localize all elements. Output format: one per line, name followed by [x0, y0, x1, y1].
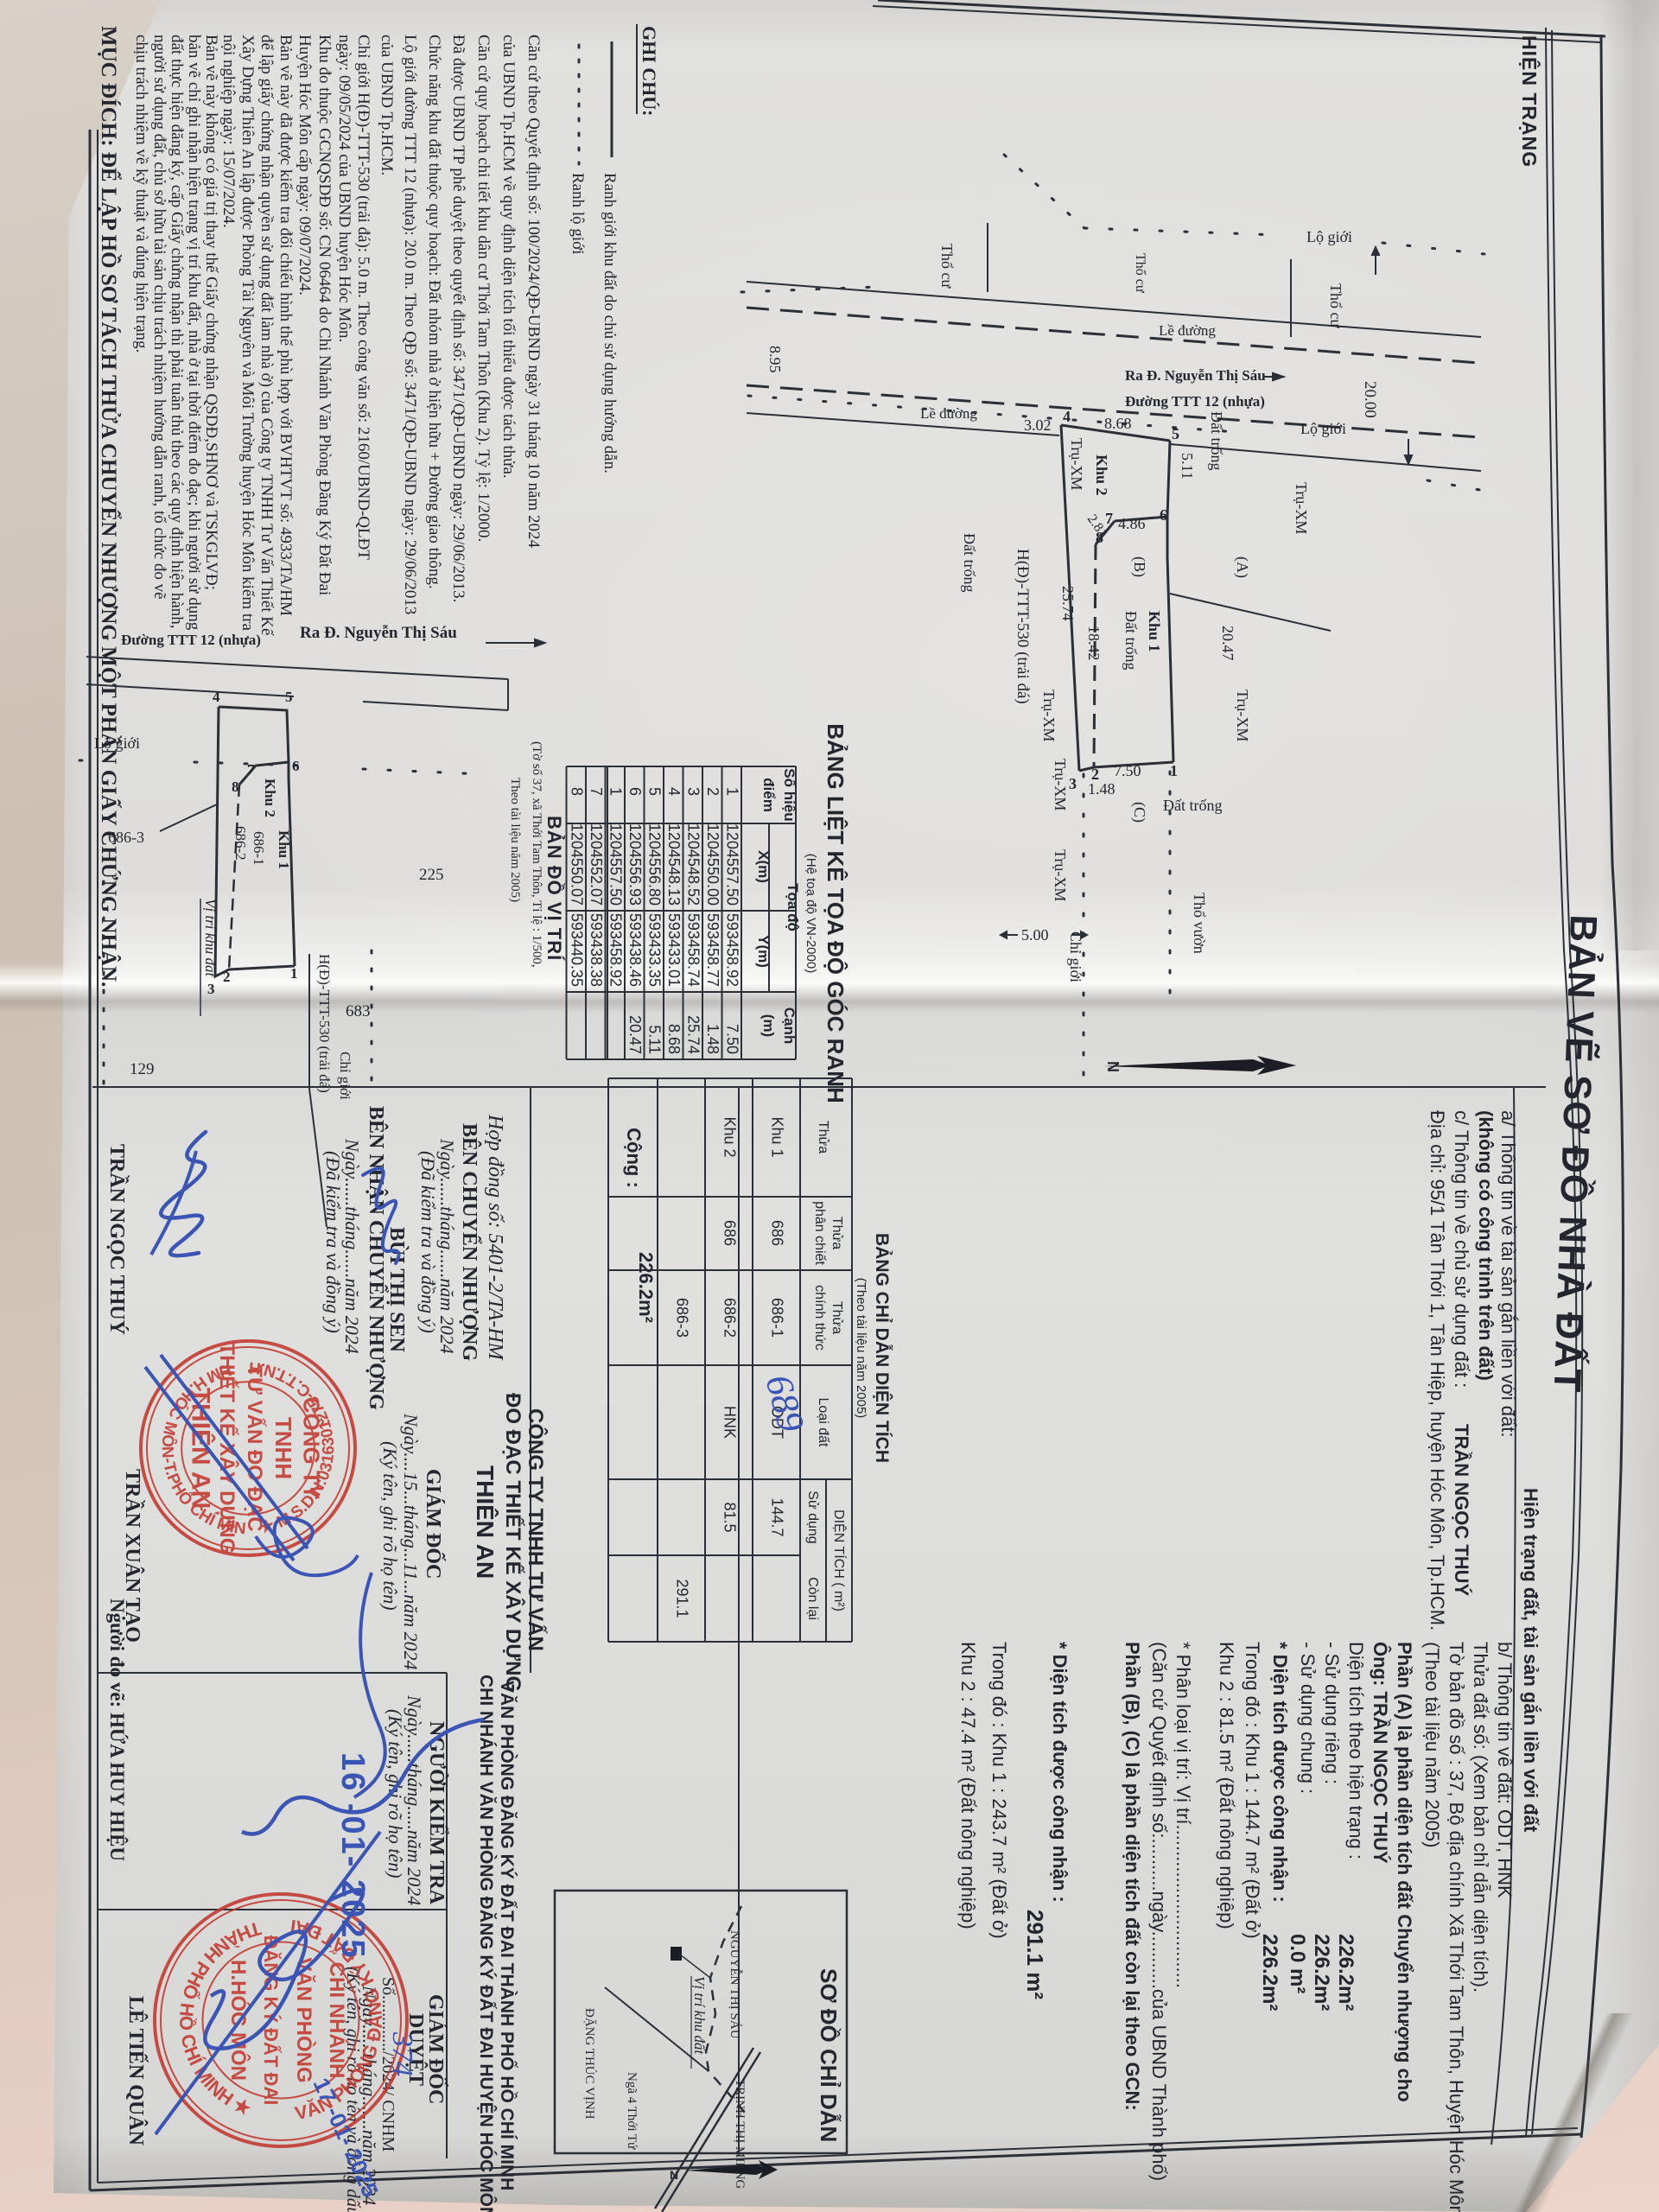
- svg-text:1204550.07: 1204550.07: [569, 823, 586, 906]
- svg-text:5.11: 5.11: [1179, 453, 1196, 480]
- svg-text:8.68: 8.68: [1104, 415, 1132, 432]
- svg-text:Chỉ giới: Chỉ giới: [337, 1052, 353, 1100]
- svg-text:593440.35: 593440.35: [569, 913, 586, 987]
- svg-text:Ngày....15...tháng...11...năm: Ngày....15...tháng...11...năm 2024: [400, 1413, 422, 1670]
- svg-text:bản vẽ chỉ ghi nhận hiện trạng: bản vẽ chỉ ghi nhận hiện trạng vị trí kh…: [185, 35, 203, 631]
- svg-text:4: 4: [1063, 408, 1071, 425]
- svg-text:BÊN CHUYỂN NHƯỢNG: BÊN CHUYỂN NHƯỢNG: [458, 1123, 481, 1361]
- svg-text:c/ Thông tin về chủ sử dụng đấ: c/ Thông tin về chủ sử dụng đất :: [1451, 1110, 1472, 1388]
- svg-text:- Sử dụng chung :: - Sử dụng chung :: [1297, 1642, 1319, 1794]
- svg-text:291.1: 291.1: [674, 1579, 691, 1618]
- svg-text:Bản vẽ này không có giá trị th: Bản vẽ này không có giá trị thay thế Giấ…: [202, 35, 220, 590]
- svg-text:(B): (B): [1130, 556, 1148, 577]
- svg-text:N: N: [1104, 1061, 1122, 1072]
- svg-text:H(Đ)-TTT-530 (trải đá): H(Đ)-TTT-530 (trải đá): [1014, 549, 1032, 704]
- svg-text:0.0 m²: 0.0 m²: [1286, 1934, 1309, 1993]
- svg-text:Khu 2: Khu 2: [1093, 454, 1110, 496]
- svg-text:Thửa: Thửa: [829, 1301, 844, 1334]
- svg-text:chính thức: chính thức: [812, 1285, 827, 1351]
- svg-text:Trụ-XM: Trụ-XM: [1052, 759, 1069, 810]
- svg-text:1204548.13: 1204548.13: [665, 823, 683, 906]
- svg-text:Đường TTT 12 (nhựa): Đường TTT 12 (nhựa): [121, 632, 261, 648]
- svg-text:1204548.52: 1204548.52: [685, 823, 702, 906]
- svg-text:Trong đó : Khu 1 : 243.7 m²: Trong đó : Khu 1 : 243.7 m² (Đất ở): [988, 1642, 1010, 1939]
- svg-text:H(Đ)-TTT-530 (trải đá): H(Đ)-TTT-530 (trải đá): [316, 954, 333, 1093]
- svg-text:Khu 1: Khu 1: [769, 1116, 786, 1157]
- svg-text:Trụ-XM: Trụ-XM: [1052, 849, 1069, 901]
- svg-text:1204550.00: 1204550.00: [704, 823, 721, 906]
- svg-text:1: 1: [1170, 762, 1178, 779]
- svg-text:người sử dụng đất, chủ sở hữu: người sử dụng đất, chủ sở hữu tài sản ch…: [150, 35, 168, 600]
- svg-text:của UBND Tp.HCM.: của UBND Tp.HCM.: [378, 35, 396, 175]
- svg-text:4.86: 4.86: [1118, 515, 1146, 532]
- svg-text:226.2m²: 226.2m²: [1310, 1934, 1333, 2011]
- svg-text:Hiện trạng đất, tài sản gắn li: Hiện trạng đất, tài sản gắn liền với đất: [1520, 1488, 1541, 1833]
- svg-text:CÔNG TY: CÔNG TY: [298, 1397, 324, 1499]
- svg-text:8.68: 8.68: [665, 1024, 683, 1054]
- svg-text:25.74: 25.74: [1059, 586, 1077, 621]
- svg-text:18.42: 18.42: [1085, 626, 1103, 661]
- svg-text:HIỆN TRẠNG: HIỆN TRẠNG: [1518, 35, 1541, 168]
- svg-text:20.47: 20.47: [626, 1015, 644, 1054]
- svg-text:* Diện tích được công nhận :: * Diện tích được công nhận :: [1049, 1642, 1071, 1903]
- svg-text:7: 7: [247, 761, 255, 778]
- svg-text:2: 2: [704, 787, 721, 796]
- svg-text:Khu 1: Khu 1: [1146, 611, 1163, 652]
- svg-text:Khu 2 : 81.5 m² (Đất nông ng: Khu 2 : 81.5 m² (Đất nông nghiệp): [1216, 1642, 1237, 1929]
- svg-text:2: 2: [223, 969, 231, 985]
- svg-text:1.48: 1.48: [1088, 780, 1116, 798]
- svg-text:HNK: HNK: [721, 1406, 739, 1439]
- svg-text:Lộ giới đường TTT 12 (nhựa): 2: Lộ giới đường TTT 12 (nhựa): 20.0 m. The…: [401, 35, 419, 614]
- svg-text:Căn cứ theo Quyết định số: 100: Căn cứ theo Quyết định số: 100/2024/QĐ-U…: [524, 35, 543, 548]
- svg-text:của UBND Tp.HCM về quy định di: của UBND Tp.HCM về quy định diện tích tố…: [499, 35, 518, 479]
- svg-text:Sử dụng: Sử dụng: [805, 1491, 820, 1543]
- svg-text:Trụ-XM: Trụ-XM: [1234, 690, 1251, 741]
- svg-text:Trụ-XM: Trụ-XM: [1040, 690, 1058, 741]
- svg-text:b/ Thông tin về đất: ODT, HNK: b/ Thông tin về đất: ODT, HNK: [1494, 1642, 1516, 1898]
- svg-text:TRẦN NGỌC THUÝ: TRẦN NGỌC THUÝ: [1451, 1424, 1472, 1597]
- svg-text:593438.46: 593438.46: [626, 913, 644, 987]
- svg-text:GIÁM ĐỐC: GIÁM ĐỐC: [424, 1994, 448, 2104]
- svg-text:Hợp đồng số: 5401-2/TA-HM: Hợp đồng số: 5401-2/TA-HM: [484, 1114, 506, 1362]
- svg-text:4: 4: [665, 787, 683, 796]
- svg-text:Thổ cư: Thổ cư: [1133, 253, 1147, 294]
- svg-text:BẢN ĐỒ VỊ TRÍ: BẢN ĐỒ VỊ TRÍ: [543, 816, 565, 961]
- svg-text:GIÁM ĐỐC: GIÁM ĐỐC: [422, 1469, 445, 1579]
- svg-text:1.48: 1.48: [704, 1024, 721, 1054]
- svg-text:Khu 1: Khu 1: [276, 830, 292, 869]
- svg-text:ĐẶNG THÚC VỊNH: ĐẶNG THÚC VỊNH: [582, 2008, 597, 2120]
- svg-text:81.5: 81.5: [721, 1502, 739, 1532]
- svg-text:THIÊN AN: THIÊN AN: [472, 1465, 499, 1579]
- svg-text:(Ký tên, ghi rõ họ tên): (Ký tên, ghi rõ họ tên): [385, 1709, 406, 1878]
- svg-text:TƯ VẤN ĐO ĐẠC: TƯ VẤN ĐO ĐẠC: [243, 1364, 267, 1531]
- svg-text:6: 6: [1160, 506, 1167, 524]
- svg-text:593438.38: 593438.38: [588, 913, 605, 987]
- svg-text:BÙI THỊ SEN: BÙI THỊ SEN: [385, 1227, 408, 1353]
- svg-text:(Ký tên, ghi rõ họ tên): (Ký tên, ghi rõ họ tên): [379, 1441, 401, 1611]
- svg-text:* Diện tích được công nhận :: * Diện tích được công nhận :: [1269, 1642, 1291, 1903]
- svg-text:5.00: 5.00: [1021, 926, 1049, 944]
- svg-text:Ranh lộ giới: Ranh lộ giới: [569, 173, 587, 255]
- svg-text:1: 1: [724, 787, 741, 796]
- svg-text:* Phân loại vị trí: Vị trí....: * Phân loại vị trí: Vị trí..............…: [1173, 1642, 1194, 1988]
- svg-text:Khu 2: Khu 2: [721, 1116, 739, 1157]
- svg-text:Ngã 4 Thới Tứ: Ngã 4 Thới Tứ: [625, 2072, 639, 2150]
- svg-text:Lộ giới: Lộ giới: [1300, 420, 1346, 437]
- svg-text:Phần (B), (C) là phần diện tíc: Phần (B), (C) là phần diện tích đất còn …: [1122, 1642, 1143, 2111]
- svg-text:(không có công trình trên đất): (không có công trình trên đất): [1475, 1110, 1497, 1381]
- svg-text:Ranh giới khu đất do chủ sử dụ: Ranh giới khu đất do chủ sử dụng hướng d…: [601, 173, 619, 474]
- svg-text:THIẾT KẾ XÂY DỰNG: THIẾT KẾ XÂY DỰNG: [215, 1343, 239, 1554]
- svg-text:1: 1: [290, 965, 298, 982]
- svg-text:Người đo vẽ: HỨA HUY HIỆU: Người đo vẽ: HỨA HUY HIỆU: [106, 1599, 128, 1861]
- svg-text:7.50: 7.50: [1114, 762, 1141, 779]
- svg-text:Trong đó : Khu 1 : 144.7 m²: Trong đó : Khu 1 : 144.7 m² (Đất ở): [1242, 1642, 1263, 1939]
- svg-text:593458.92: 593458.92: [607, 913, 625, 987]
- svg-text:Thổ cư: Thổ cư: [938, 244, 956, 289]
- svg-text:phân chiết: phân chiết: [812, 1201, 827, 1265]
- svg-text:225: 225: [419, 866, 444, 884]
- svg-text:Vị trí khu đất: Vị trí khu đất: [691, 1976, 708, 2055]
- svg-text:DIỆN TÍCH ( m²): DIỆN TÍCH ( m²): [831, 1510, 848, 1611]
- svg-text:Bản vẽ này đã được kiểm tra đố: Bản vẽ này đã được kiểm tra đối chiếu hì…: [276, 35, 295, 616]
- svg-text:GHI CHÚ:: GHI CHÚ:: [639, 26, 660, 117]
- svg-text:Căn cứ quy hoạch chi tiết khu: Căn cứ quy hoạch chi tiết khu dân cư Thớ…: [474, 35, 493, 542]
- svg-text:374: 374: [386, 2031, 418, 2076]
- svg-text:(C): (C): [1130, 802, 1148, 823]
- svg-text:4: 4: [213, 689, 220, 705]
- svg-text:129: 129: [130, 1060, 155, 1078]
- svg-text:(Theo tài liệu năm 2005): (Theo tài liệu năm 2005): [1421, 1642, 1443, 1847]
- svg-text:Cạnh: Cạnh: [781, 1007, 798, 1045]
- svg-text:BẢN VẼ SƠ ĐỒ NHÀ ĐẤT: BẢN VẼ SƠ ĐỒ NHÀ ĐẤT: [1546, 914, 1605, 1394]
- svg-text:686-1: 686-1: [769, 1298, 786, 1338]
- svg-text:Diện tích theo hiện trạng :: Diện tích theo hiện trạng :: [1345, 1642, 1367, 1859]
- svg-text:689: 689: [757, 1370, 812, 1436]
- svg-text:ngày: 09/05/2024 của UBND huyệ: ngày: 09/05/2024 của UBND huyện Hóc Môn.: [335, 35, 353, 342]
- svg-text:Tọa độ: Tọa độ: [785, 883, 801, 931]
- svg-text:BÊN NHẬN CHUYỂN NHƯỢNG: BÊN NHẬN CHUYỂN NHƯỢNG: [365, 1106, 388, 1410]
- svg-text:8: 8: [1096, 529, 1103, 546]
- svg-text:(Hệ toạ độ VN-2000): (Hệ toạ độ VN-2000): [804, 854, 818, 973]
- svg-text:ĐO ĐẠC THIẾT KẾ XÂY DỰNG: ĐO ĐẠC THIẾT KẾ XÂY DỰNG: [501, 1393, 525, 1692]
- svg-text:3: 3: [1069, 775, 1077, 792]
- svg-text:291.1 m²: 291.1 m²: [1022, 1910, 1048, 1999]
- svg-text:683: 683: [346, 1002, 371, 1020]
- svg-text:Xây Dựng Thiên An lập được Phò: Xây Dựng Thiên An lập được Phòng Tài Ngu…: [238, 35, 257, 631]
- svg-text:Thửa: Thửa: [816, 1121, 830, 1154]
- svg-text:1: 1: [607, 787, 625, 796]
- svg-text:TNHH: TNHH: [270, 1417, 296, 1479]
- svg-text:NGUYỄN THỊ SÁU: NGUYỄN THỊ SÁU: [728, 1930, 743, 2039]
- svg-text:Y(m): Y(m): [755, 935, 772, 968]
- svg-text:Thổ cư: Thổ cư: [1327, 283, 1344, 328]
- svg-text:Chỉ giới: Chỉ giới: [1067, 931, 1084, 982]
- svg-text:Trụ-XM: Trụ-XM: [1068, 438, 1085, 490]
- svg-text:Đất trống: Đất trống: [1163, 797, 1222, 814]
- svg-text:7: 7: [1105, 510, 1113, 527]
- svg-text:(Căn cứ Quyết định số:........: (Căn cứ Quyết định số:..........ngày....…: [1148, 1642, 1170, 2181]
- svg-text:(Theo tài liệu năm 2005): (Theo tài liệu năm 2005): [854, 1278, 868, 1419]
- svg-text:226.2m²: 226.2m²: [1258, 1934, 1281, 2011]
- svg-text:Lề đường: Lề đường: [920, 405, 977, 422]
- svg-text:điểm: điểm: [760, 778, 777, 812]
- svg-text:X(m): X(m): [755, 850, 772, 883]
- svg-text:686-1: 686-1: [251, 831, 267, 866]
- svg-text:Ra Đ. Nguyễn Thị Sáu: Ra Đ. Nguyễn Thị Sáu: [300, 624, 457, 642]
- svg-text:Đất trống: Đất trống: [1122, 611, 1140, 670]
- svg-text:BẢNG CHỈ DẪN DIỆN TÍCH: BẢNG CHỈ DẪN DIỆN TÍCH: [872, 1233, 893, 1463]
- svg-text:đất thực hiện đăng ký, cấp Giấ: đất thực hiện đăng ký, cấp Giấy chứng nh…: [168, 35, 186, 629]
- svg-text:(Đã kiểm tra và đồng ý): (Đã kiểm tra và đồng ý): [417, 1151, 439, 1333]
- svg-text:7: 7: [588, 787, 605, 796]
- svg-text:N: N: [670, 2168, 678, 2182]
- svg-text:BẢNG LIỆT KÊ TỌA ĐỘ GÓC RANH: BẢNG LIỆT KÊ TỌA ĐỘ GÓC RANH: [823, 723, 849, 1103]
- svg-text:686-2: 686-2: [232, 826, 249, 861]
- svg-text:1204557.50: 1204557.50: [607, 823, 625, 906]
- svg-text:20.47: 20.47: [1219, 626, 1236, 661]
- svg-text:Lề đường: Lề đường: [1159, 322, 1216, 339]
- svg-text:25.74: 25.74: [685, 1015, 702, 1054]
- svg-text:CÔNG TY TNHH TƯ VẤN: CÔNG TY TNHH TƯ VẤN: [524, 1408, 548, 1651]
- svg-text:Ông: TRẦN NGỌC THUÝ: Ông: TRẦN NGỌC THUÝ: [1370, 1642, 1391, 1864]
- svg-text:Cộng :: Cộng :: [623, 1128, 645, 1188]
- svg-text:686: 686: [721, 1220, 739, 1246]
- svg-text:Đường TTT 12 (nhựa): Đường TTT 12 (nhựa): [1125, 393, 1265, 410]
- svg-text:Lộ giới: Lộ giới: [94, 734, 140, 752]
- svg-text:Khu 2: Khu 2: [262, 779, 278, 817]
- svg-text:8: 8: [569, 787, 586, 796]
- svg-text:593433.35: 593433.35: [646, 913, 664, 987]
- svg-text:(Đã kiểm tra và đồng ý): (Đã kiểm tra và đồng ý): [322, 1151, 344, 1333]
- svg-text:Đã được UBND TP phê duyệt theo: Đã được UBND TP phê duyệt theo quyết địn…: [449, 35, 467, 602]
- svg-text:Đất trống: Đất trống: [961, 533, 978, 592]
- svg-text:Địa chỉ: 95/1 Tân Thới 1, Tân: Địa chỉ: 95/1 Tân Thới 1, Tân Hiệp, huyệ…: [1427, 1110, 1448, 1630]
- svg-text:1204556.80: 1204556.80: [646, 823, 664, 906]
- svg-text:226.2m²: 226.2m²: [1334, 1934, 1357, 2011]
- svg-text:6: 6: [292, 758, 300, 774]
- svg-text:Ra Đ. Nguyễn Thị Sáu: Ra Đ. Nguyễn Thị Sáu: [1125, 367, 1266, 384]
- svg-text:5: 5: [285, 689, 293, 705]
- svg-text:Chỉ giới H(Đ)-TTT-530 (trải đá: Chỉ giới H(Đ)-TTT-530 (trải đá): 5.0 m. …: [354, 35, 372, 560]
- svg-text:VĂN PHÒNG ĐĂNG KÝ ĐẤT ĐAI THÀN: VĂN PHÒNG ĐĂNG KÝ ĐẤT ĐAI THÀNH PHỐ HỒ C…: [497, 1681, 518, 2190]
- svg-text:Số hiệu: Số hiệu: [781, 768, 798, 821]
- svg-text:Theo tài liệu năm 2005): Theo tài liệu năm 2005): [508, 778, 522, 902]
- svg-text:5.11: 5.11: [646, 1025, 664, 1054]
- svg-text:3.02: 3.02: [1024, 416, 1052, 434]
- svg-text:Lộ giới: Lộ giới: [1306, 228, 1352, 245]
- svg-text:(Tờ số 37, xã Thới Tam Thôn, T: (Tờ số 37, xã Thới Tam Thôn, Tỉ lệ : 1/5…: [530, 741, 543, 968]
- svg-text:Thửa: Thửa: [829, 1217, 844, 1249]
- svg-text:593458.74: 593458.74: [685, 913, 702, 987]
- svg-text:- Sử dụng riêng :: - Sử dụng riêng :: [1321, 1642, 1343, 1784]
- svg-text:Khu đo thuộc GCNQSDĐ số: CN 06: Khu đo thuộc GCNQSDĐ số: CN 06464 do Chi…: [315, 35, 334, 595]
- svg-text:1204552.07: 1204552.07: [588, 823, 605, 906]
- svg-text:8: 8: [232, 779, 239, 795]
- svg-text:LÊ TIẾN QUÂN: LÊ TIẾN QUÂN: [124, 1996, 148, 2146]
- svg-text:Còn lại: Còn lại: [805, 1577, 820, 1620]
- svg-text:686-2: 686-2: [721, 1298, 739, 1338]
- svg-text:3: 3: [685, 787, 702, 796]
- svg-text:5: 5: [646, 787, 664, 796]
- svg-text:Trụ-XM: Trụ-XM: [1293, 482, 1310, 534]
- svg-text:144.7: 144.7: [769, 1497, 786, 1536]
- svg-text:Vị trí khu đất: Vị trí khu đất: [202, 899, 219, 977]
- svg-text:Thửa đất số: (Xem bản chỉ dẫn: Thửa đất số: (Xem bản chỉ dẫn diện tích)…: [1470, 1642, 1491, 1993]
- svg-text:686: 686: [769, 1220, 786, 1246]
- svg-text:Huyện Hóc Môn cấp ngày: 09/07/: Huyện Hóc Môn cấp ngày: 09/07/2024.: [296, 35, 314, 296]
- svg-text:nội nghiệp ngày: 15/07/2024.: nội nghiệp ngày: 15/07/2024.: [219, 35, 238, 228]
- svg-text:Loại đất: Loại đất: [816, 1398, 830, 1447]
- svg-text:NGƯỜI KIỂM TRA: NGƯỜI KIỂM TRA: [425, 1721, 448, 1905]
- svg-text:CHI NHÁNH VĂN PHÒNG ĐĂNG KÝ ĐẤ: CHI NHÁNH VĂN PHÒNG ĐĂNG KÝ ĐẤT ĐAI HUYỆ…: [476, 1675, 497, 2212]
- svg-text:CHI NHÁNH: CHI NHÁNH: [325, 1962, 349, 2079]
- svg-text:3: 3: [207, 981, 215, 997]
- svg-text:TRẦN NGỌC THUÝ: TRẦN NGỌC THUÝ: [105, 1144, 129, 1335]
- svg-text:20.00: 20.00: [1361, 381, 1379, 418]
- svg-text:1204556.93: 1204556.93: [626, 823, 644, 906]
- svg-text:Đất trống: Đất trống: [1208, 411, 1225, 470]
- svg-text:686-3: 686-3: [108, 829, 144, 846]
- svg-text:8.95: 8.95: [766, 346, 784, 373]
- svg-text:7.50: 7.50: [724, 1024, 741, 1054]
- svg-text:6: 6: [626, 787, 644, 796]
- svg-text:1204557.50: 1204557.50: [724, 823, 741, 906]
- svg-text:593458.92: 593458.92: [724, 913, 741, 987]
- svg-text:chịu trách nhiệm về kỹ thuật v: chịu trách nhiệm về kỹ thuật và đúng hiệ…: [132, 35, 150, 353]
- svg-text:Khu 2 : 47.4 m² (Đất nông ng: Khu 2 : 47.4 m² (Đất nông nghiệp): [957, 1642, 979, 1929]
- svg-text:686-3: 686-3: [674, 1298, 691, 1338]
- svg-text:593458.77: 593458.77: [704, 913, 721, 987]
- svg-text:593433.01: 593433.01: [665, 913, 683, 987]
- svg-text:(m): (m): [760, 1014, 777, 1037]
- svg-text:226.2m²: 226.2m²: [635, 1252, 657, 1323]
- svg-text:5: 5: [1172, 425, 1179, 442]
- svg-text:a/ Thông tin về tài sản gắn li: a/ Thông tin về tài sản gắn liền với đất…: [1497, 1110, 1519, 1437]
- svg-text:Thổ vườn: Thổ vườn: [1191, 893, 1208, 954]
- svg-text:(A): (A): [1233, 556, 1251, 578]
- svg-text:để lập giấy chứng nhận quyền s: để lập giấy chứng nhận quyền sử dụng đất…: [257, 35, 276, 636]
- svg-text:Chức năng khu đất thuộc quy ho: Chức năng khu đất thuộc quy hoạch: Đất n…: [425, 35, 443, 589]
- svg-text:SƠ ĐỒ CHỈ DẪN: SƠ ĐỒ CHỈ DẪN: [816, 1968, 842, 2142]
